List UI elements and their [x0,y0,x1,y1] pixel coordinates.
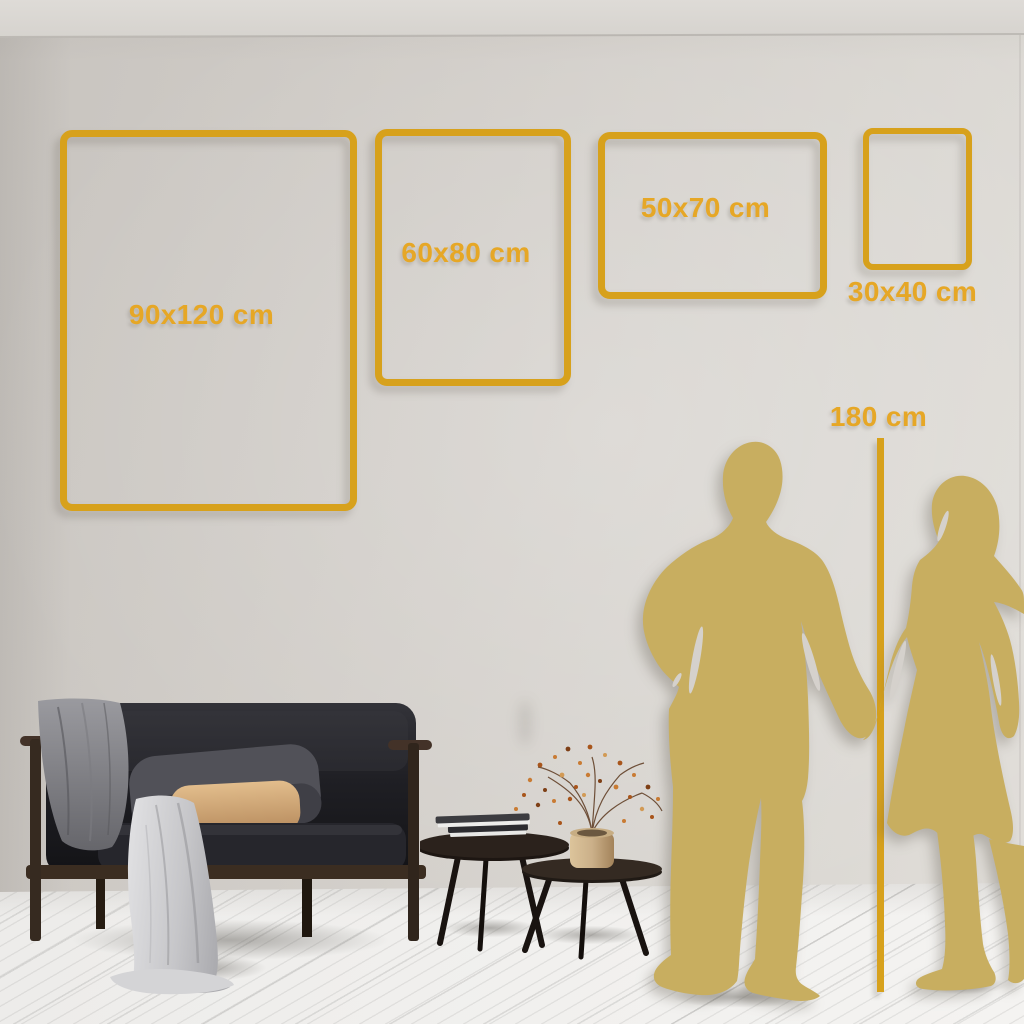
ceiling [0,0,1024,38]
sofa-illustration [10,695,440,995]
sofa-post-right [408,743,419,941]
height-reference-label: 180 cm [796,401,961,433]
size-guide-scene: 90x120 cm 60x80 cm 50x70 cm 30x40 cm [0,0,1024,1024]
sofa-leg-inner [96,879,105,929]
wood-rail [26,865,426,879]
size-label-60x80: 60x80 cm [355,237,577,269]
size-frame-30x40 [863,128,972,270]
sofa-leg-mid [302,879,312,937]
stacked-books [436,813,531,837]
brass-vase [570,828,614,868]
woman-silhouette [863,476,1024,991]
size-label-50x70: 50x70 cm [598,192,813,224]
man-silhouette [643,442,876,1001]
size-label-30x40: 30x40 cm [820,276,1005,308]
size-label-90x120: 90x120 cm [60,299,343,331]
couple-silhouettes [630,430,1024,1010]
sofa-post-left [30,739,41,941]
